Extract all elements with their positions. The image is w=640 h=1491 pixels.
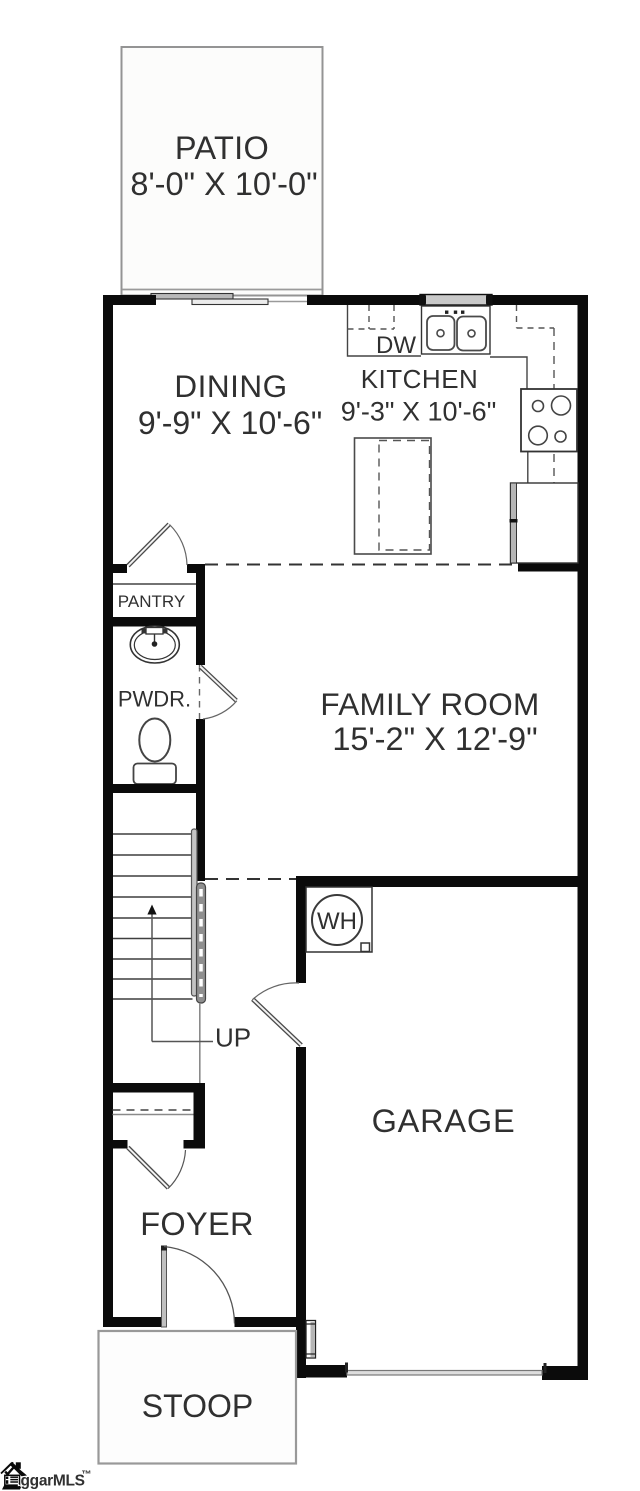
svg-text:8'-0" X 10'-0": 8'-0" X 10'-0" xyxy=(130,166,317,202)
svg-text:DINING: DINING xyxy=(174,368,287,404)
svg-text:FAMILY ROOM: FAMILY ROOM xyxy=(320,686,539,722)
svg-text:STOOP: STOOP xyxy=(142,1388,253,1424)
svg-text:PATIO: PATIO xyxy=(175,130,269,166)
svg-text:KITCHEN: KITCHEN xyxy=(361,364,479,394)
svg-text:WH: WH xyxy=(317,908,357,935)
svg-text:PANTRY: PANTRY xyxy=(118,592,185,611)
svg-text:DW: DW xyxy=(376,332,416,359)
svg-text:9'-3" X 10'-6": 9'-3" X 10'-6" xyxy=(341,397,497,427)
svg-text:™: ™ xyxy=(82,1470,92,1481)
svg-text:GARAGE: GARAGE xyxy=(372,1103,516,1139)
svg-text:15'-2" X 12'-9": 15'-2" X 12'-9" xyxy=(332,721,537,757)
svg-text:9'-9" X 10'-6": 9'-9" X 10'-6" xyxy=(138,405,322,441)
svg-text:PWDR.: PWDR. xyxy=(118,687,191,712)
svg-text:FOYER: FOYER xyxy=(140,1206,253,1242)
svg-text:ggarMLS: ggarMLS xyxy=(21,1473,85,1490)
svg-text:UP: UP xyxy=(215,1023,251,1053)
